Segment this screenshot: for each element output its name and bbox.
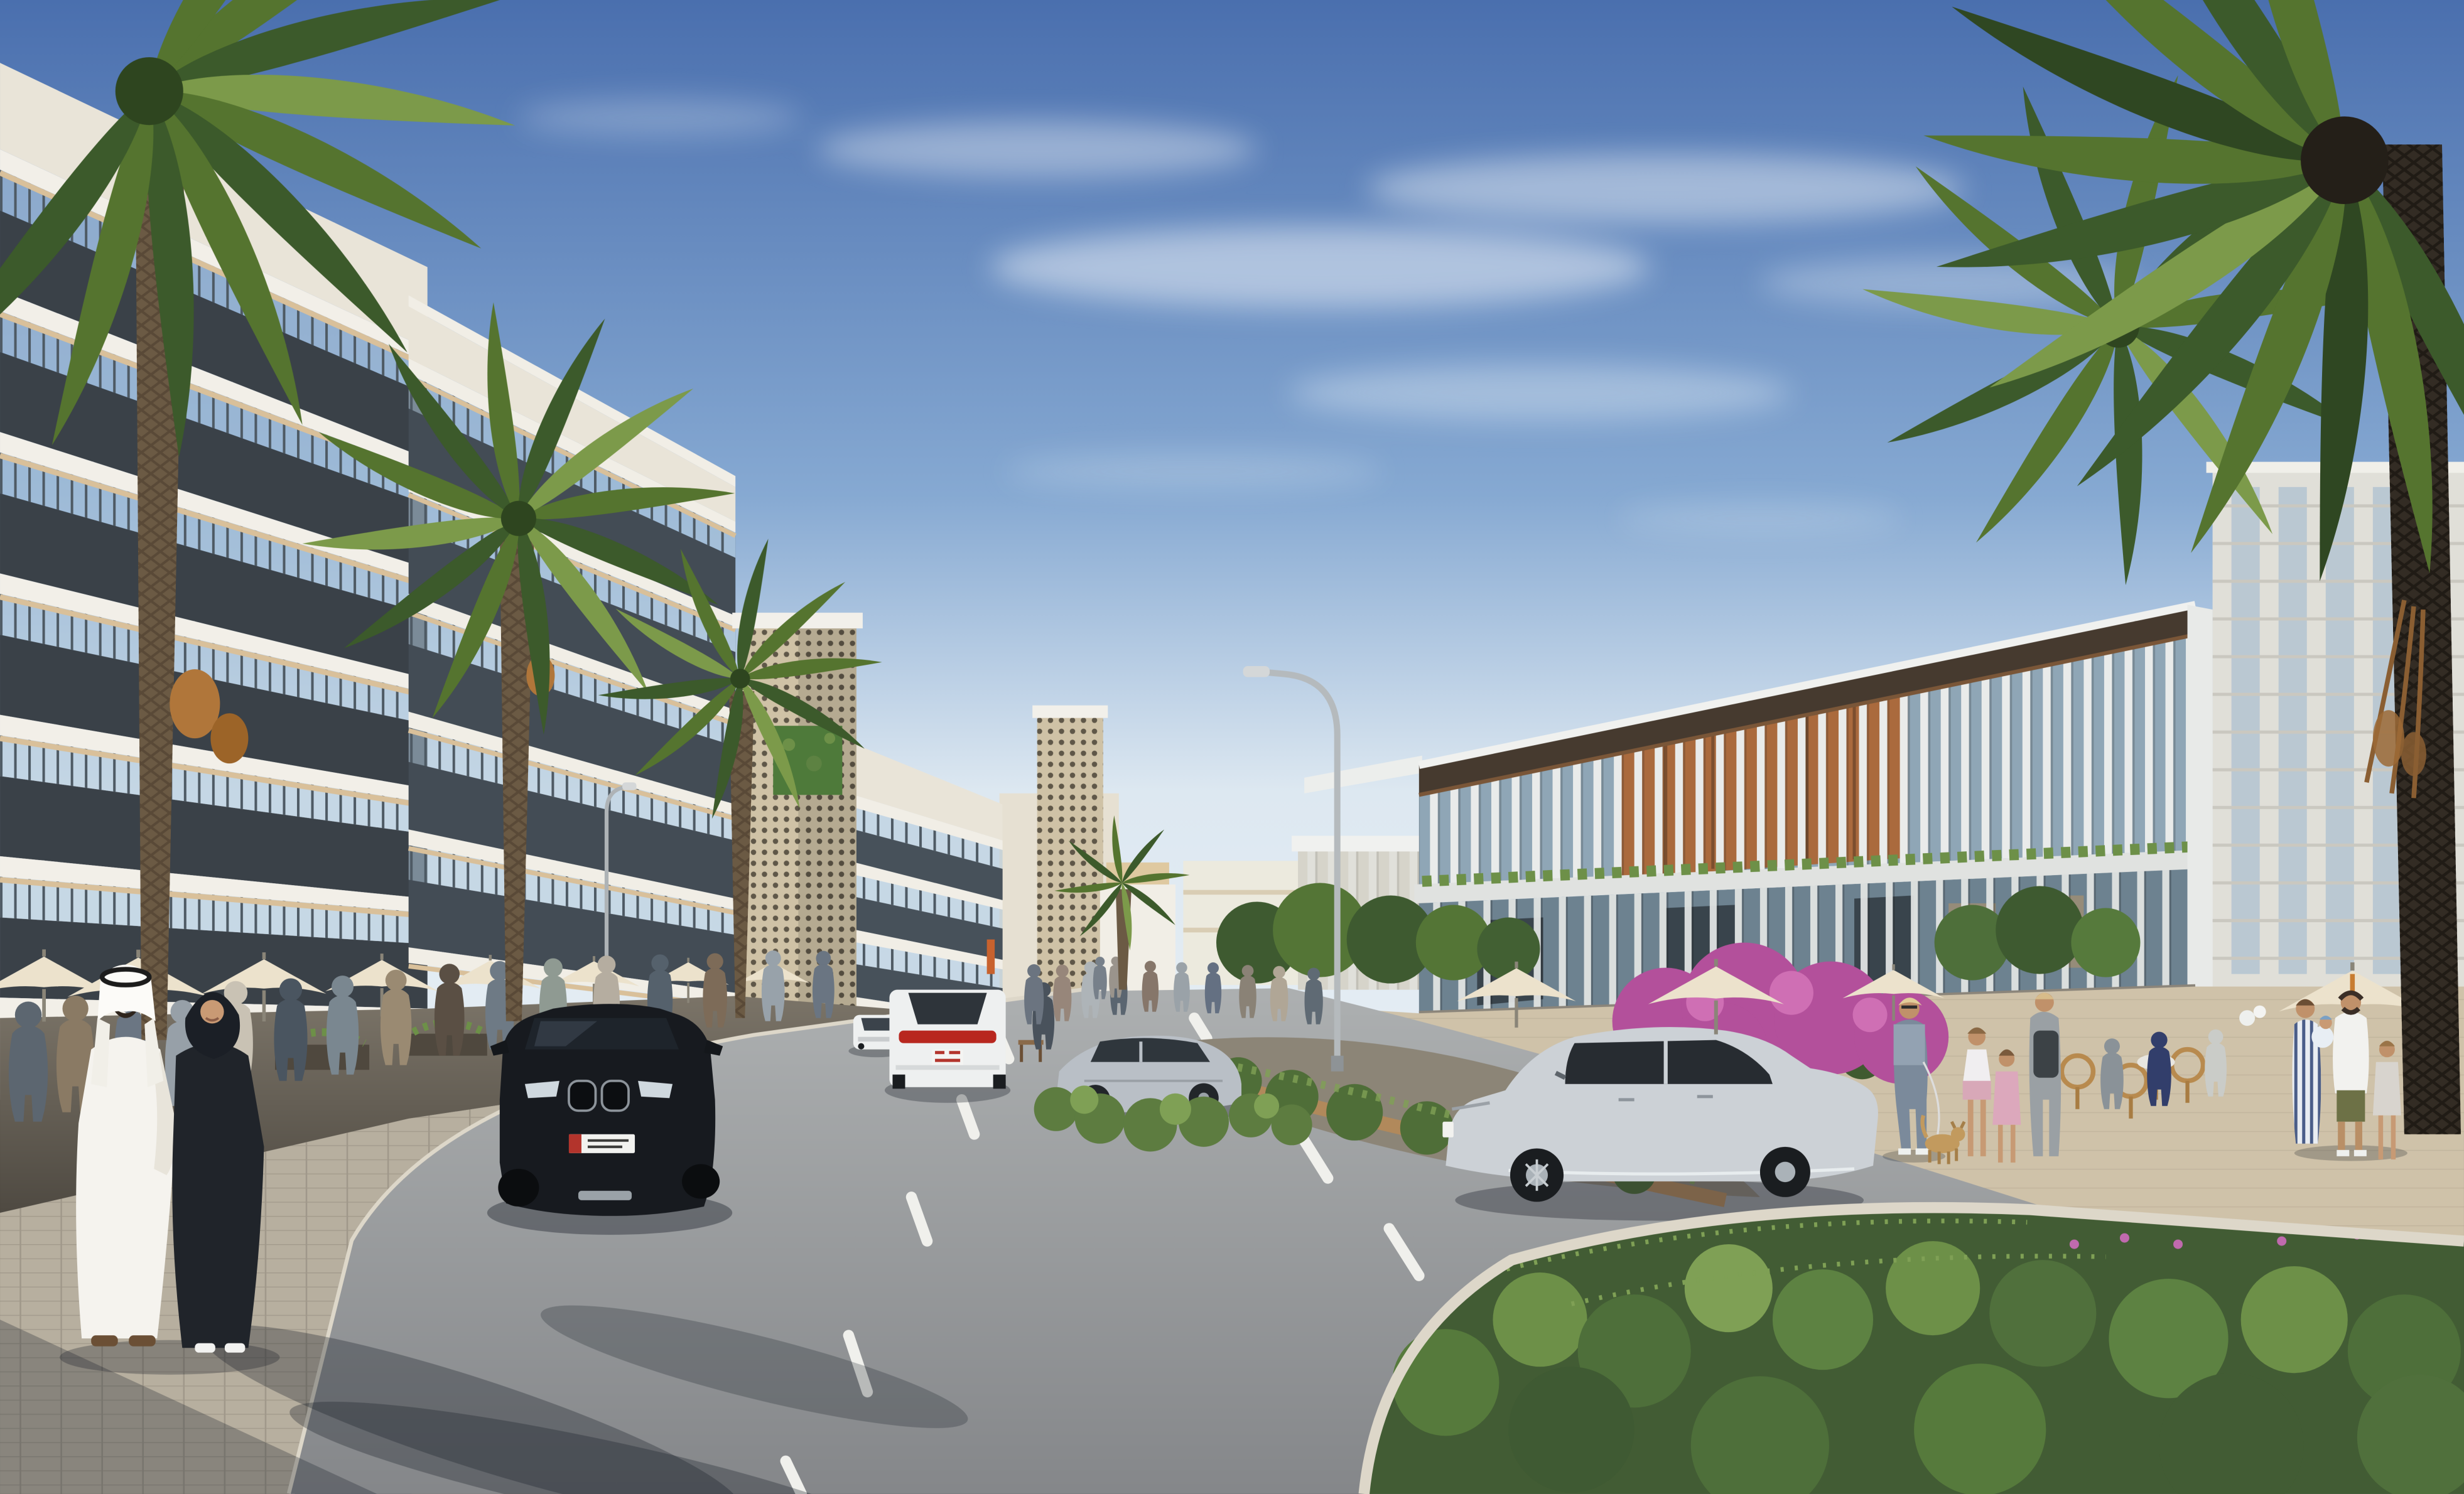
- pavilion-end-cap: [2188, 605, 2213, 990]
- tail-light-bar: [899, 1031, 996, 1043]
- architectural-rendering: Photorealistic architectural rendering o…: [0, 0, 2464, 1494]
- sandal: [91, 1335, 118, 1346]
- toddler: [2311, 1026, 2333, 1048]
- backpack: [2033, 1031, 2058, 1078]
- scene-svg: [0, 0, 2464, 1494]
- lamp-head: [1243, 666, 1270, 677]
- small-girl: [2373, 1062, 2401, 1115]
- denim-jacket: [1894, 1024, 1925, 1065]
- orange-banner: [987, 940, 995, 974]
- white-shirt-man: [2333, 1012, 2369, 1094]
- front-plate: [1442, 1122, 1454, 1137]
- abaya: [172, 1043, 264, 1348]
- sandal: [129, 1335, 156, 1346]
- kidney-grille: [602, 1081, 629, 1111]
- planted-bed-right: [1364, 1208, 2464, 1494]
- sneaker: [195, 1343, 215, 1353]
- kidney-grille: [569, 1081, 596, 1111]
- sneaker: [225, 1343, 246, 1353]
- black-suv: [487, 1004, 732, 1235]
- white-muscle-car: [885, 990, 1010, 1103]
- date-cluster: [210, 713, 248, 763]
- rear-window: [908, 993, 986, 1024]
